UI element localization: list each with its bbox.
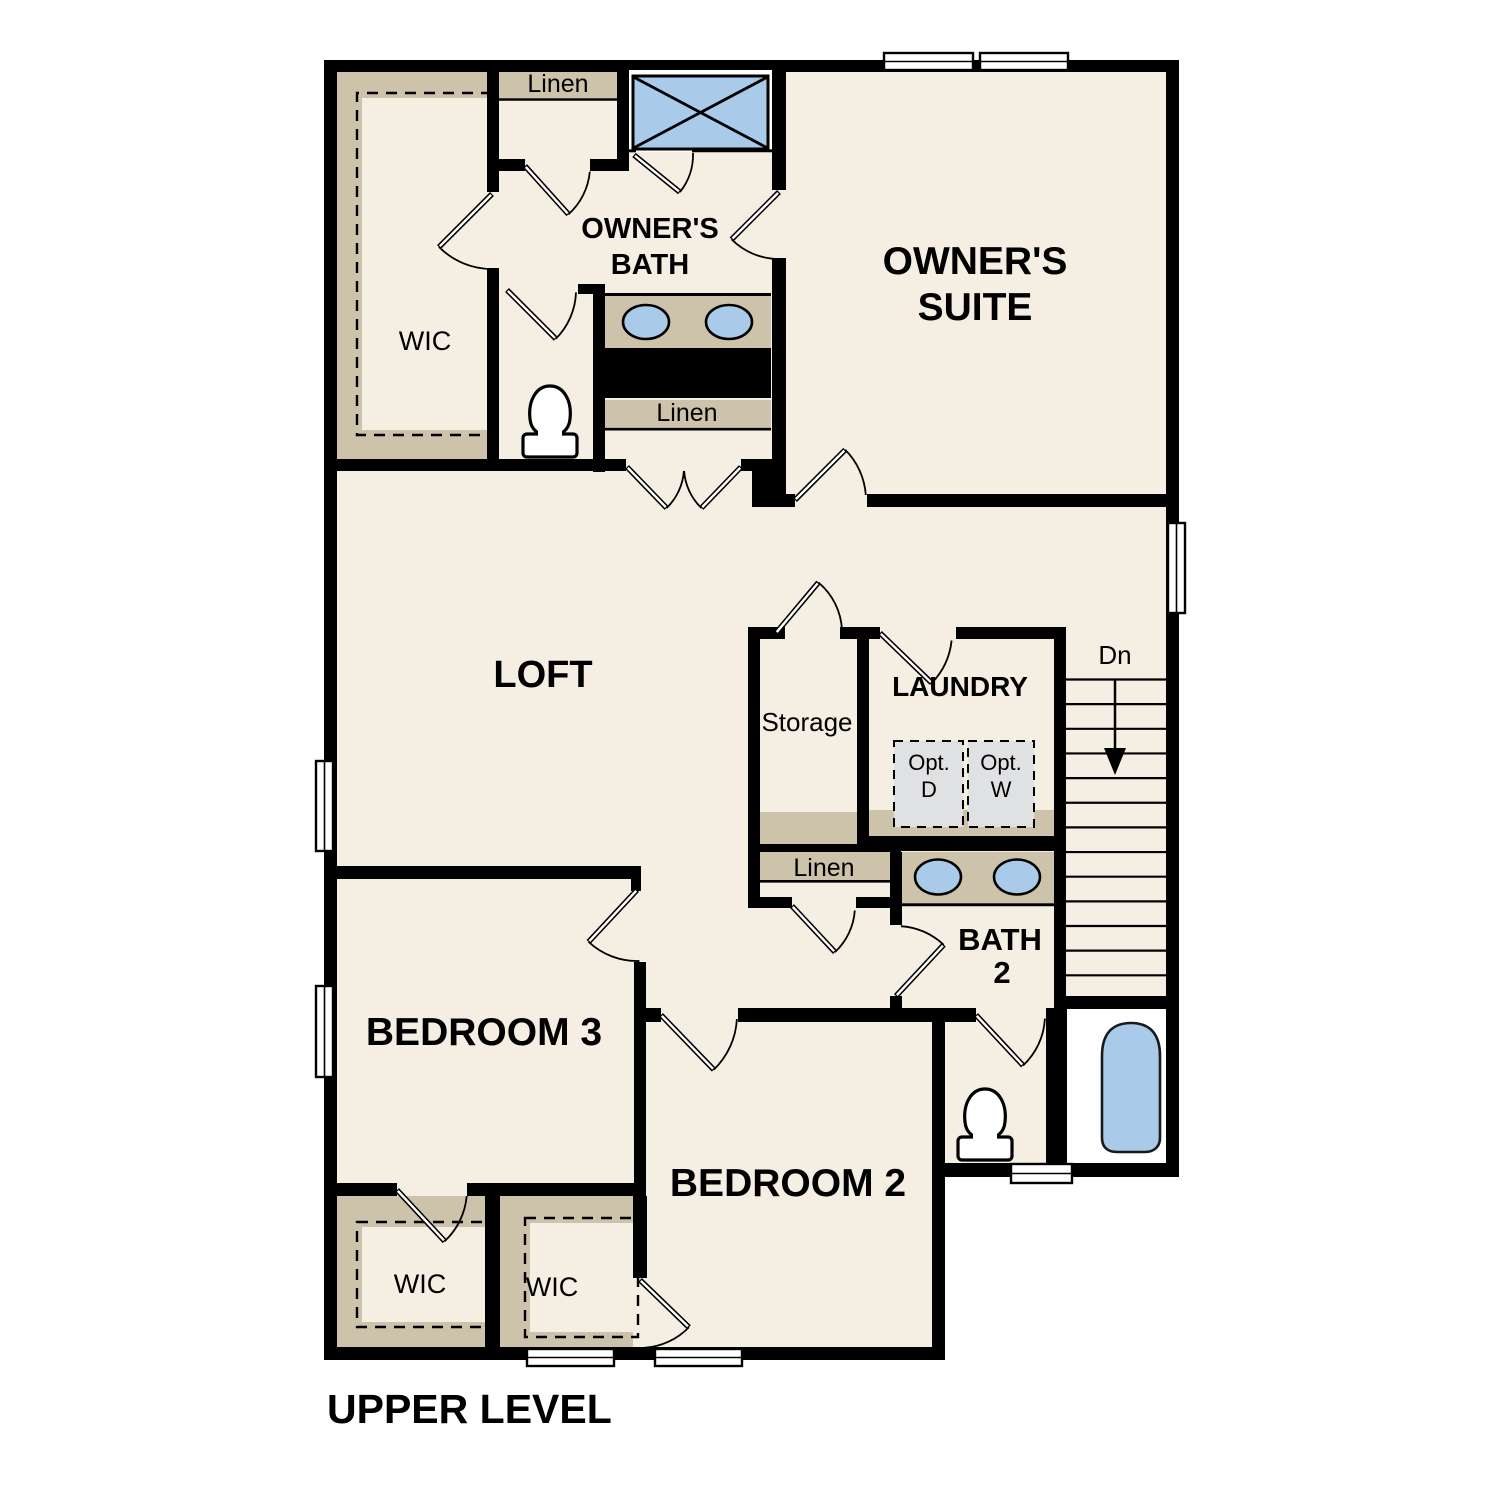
svg-text:Dn: Dn bbox=[1098, 640, 1131, 670]
svg-text:BATH: BATH bbox=[611, 249, 689, 281]
svg-text:2: 2 bbox=[993, 955, 1010, 990]
svg-text:LOFT: LOFT bbox=[493, 654, 592, 696]
svg-text:Storage: Storage bbox=[761, 707, 852, 737]
svg-text:WIC: WIC bbox=[394, 1269, 446, 1299]
svg-text:LAUNDRY: LAUNDRY bbox=[892, 671, 1028, 702]
svg-text:Linen: Linen bbox=[527, 70, 588, 98]
svg-text:WIC: WIC bbox=[399, 326, 451, 356]
svg-text:BEDROOM 2: BEDROOM 2 bbox=[670, 1162, 906, 1205]
svg-text:Linen: Linen bbox=[793, 854, 854, 882]
svg-text:BATH: BATH bbox=[958, 922, 1042, 957]
svg-text:SUITE: SUITE bbox=[918, 286, 1033, 329]
svg-text:UPPER LEVEL: UPPER LEVEL bbox=[327, 1386, 612, 1432]
svg-text:OWNER'S: OWNER'S bbox=[581, 213, 718, 245]
svg-text:W: W bbox=[991, 777, 1012, 802]
svg-text:OWNER'S: OWNER'S bbox=[883, 240, 1068, 283]
svg-text:Opt.: Opt. bbox=[980, 750, 1022, 775]
svg-text:Linen: Linen bbox=[656, 399, 717, 427]
svg-text:D: D bbox=[921, 777, 937, 802]
svg-text:BEDROOM 3: BEDROOM 3 bbox=[366, 1011, 602, 1054]
svg-text:WIC: WIC bbox=[526, 1272, 578, 1302]
svg-text:Opt.: Opt. bbox=[908, 750, 950, 775]
